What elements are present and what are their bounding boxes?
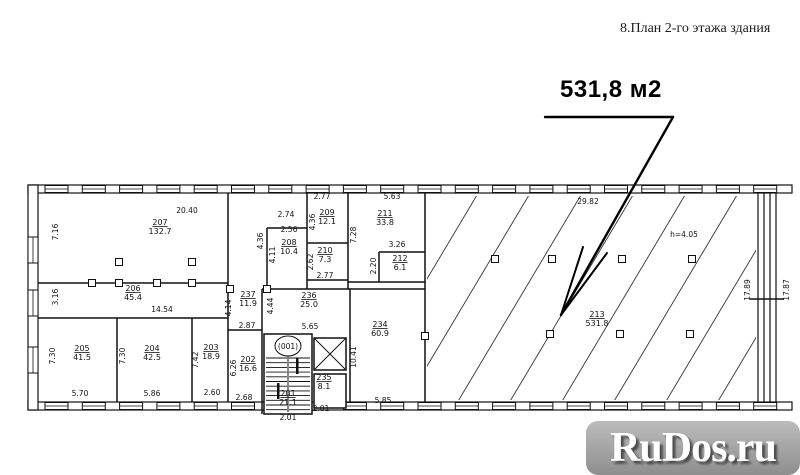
column-marker: [687, 331, 694, 338]
dim-label: 2.20: [369, 257, 378, 274]
window-icon: [567, 403, 590, 410]
dim-label: 7.42: [191, 351, 200, 368]
stair-direction-mark: [277, 383, 280, 399]
column-marker: [689, 256, 696, 263]
dim-label: 7.28: [349, 226, 358, 243]
window-icon: [455, 403, 478, 410]
dim-label: 10.41: [349, 346, 358, 368]
column-marker: [619, 256, 626, 263]
watermark-badge: RuDos.ru: [586, 421, 800, 475]
window-icon: [343, 403, 366, 410]
room-area-205: 41.5: [73, 353, 91, 362]
window-icon: [194, 186, 217, 193]
room-label-213: 213: [589, 310, 604, 319]
window-icon: [82, 186, 105, 193]
window-icon: [343, 186, 366, 193]
window-icon: [679, 403, 702, 410]
window-icon: [605, 403, 628, 410]
window-icon: [120, 186, 143, 193]
window-icon: [28, 237, 38, 263]
dim-label: 17.89: [743, 279, 752, 301]
room-area-211: 33.8: [376, 218, 394, 227]
room-area-208: 10.4: [280, 247, 298, 256]
room-label-237: 237: [240, 290, 255, 299]
dim-label: 2.87: [239, 321, 256, 330]
area-callout-label: 531,8 м2: [560, 76, 662, 104]
column-marker: [116, 259, 123, 266]
column-marker: [617, 331, 624, 338]
window-icon: [567, 186, 590, 193]
window-icon: [269, 186, 292, 193]
dim-label: 4.14: [224, 299, 233, 316]
dim-label: 5.65: [302, 322, 319, 331]
column-marker: [547, 331, 554, 338]
room-area-204: 42.5: [143, 353, 161, 362]
dim-label: 2.62: [306, 253, 315, 270]
room-area-207: 132.7: [149, 227, 172, 236]
room-label-209: 209: [319, 208, 334, 217]
column-marker: [492, 256, 499, 263]
room-label-235: 235: [316, 373, 331, 382]
dim-label: 5.70: [72, 389, 89, 398]
page-title: 8.План 2-го этажа здания: [620, 21, 770, 37]
dim-label: 2.60: [204, 388, 221, 397]
room-area-212: 6.1: [394, 263, 407, 272]
window-icon: [493, 403, 516, 410]
dim-label: 4.36: [308, 213, 317, 230]
window-icon: [82, 403, 105, 410]
dim-label: 29.82: [577, 197, 599, 206]
column-marker: [154, 280, 161, 287]
window-icon: [493, 186, 516, 193]
window-icon: [418, 403, 441, 410]
room-label-205: 205: [74, 344, 89, 353]
dim-label: 2.68: [236, 393, 253, 402]
window-icon: [418, 186, 441, 193]
window-icon: [754, 403, 777, 410]
window-icon: [120, 403, 143, 410]
room-area-237: 11.9: [239, 299, 257, 308]
dim-label: 5.85: [375, 396, 392, 405]
window-icon: [530, 403, 553, 410]
stair-direction-mark: [296, 358, 299, 374]
room-area-206: 45.4: [124, 293, 142, 302]
room-label-236: 236: [301, 291, 316, 300]
room-area-203: 18.9: [202, 352, 220, 361]
room-area-210: 7.3: [319, 255, 332, 264]
window-icon: [754, 186, 777, 193]
room-label-203: 203: [203, 343, 218, 352]
outer-walls: [28, 185, 792, 410]
window-icon: [194, 403, 217, 410]
dim-label: 14.54: [151, 305, 173, 314]
dim-label: 2.56: [281, 225, 298, 234]
room-label-206: 206: [125, 284, 140, 293]
column-marker: [422, 333, 429, 340]
dim-label: 2.74: [278, 210, 295, 219]
window-icon: [28, 347, 38, 373]
dim-label: 3.16: [51, 288, 60, 305]
dim-label: 2.01: [313, 404, 330, 413]
window-icon: [45, 186, 68, 193]
room-label-201: 201: [280, 389, 295, 398]
room-label-208: 208: [281, 238, 296, 247]
window-icon: [232, 403, 255, 410]
floor-plan-svg: (001) 207132.720645.420541.520442.520318…: [0, 0, 800, 475]
window-icon: [530, 186, 553, 193]
dim-label: h=4.05: [670, 230, 698, 239]
room-area-209: 12.1: [318, 217, 336, 226]
room-area-201: 21.1: [279, 398, 297, 407]
room-area-202: 16.6: [239, 364, 257, 373]
dim-label: 2.77: [314, 192, 331, 201]
dim-label: 6.26: [229, 359, 238, 376]
window-icon: [455, 186, 478, 193]
window-icon: [716, 403, 739, 410]
dim-label: 7.30: [48, 347, 57, 364]
dim-label: 4.44: [266, 297, 275, 314]
stair-badge-label: (001): [278, 342, 298, 351]
room-label-211: 211: [377, 209, 392, 218]
dim-label: 7.30: [118, 347, 127, 364]
room-area-213: 531.8: [586, 319, 609, 328]
diagonal-hatching: [350, 190, 800, 408]
dim-label: 2.01: [280, 413, 297, 422]
window-icon: [232, 186, 255, 193]
window-icon: [716, 186, 739, 193]
dim-label: 7.16: [51, 223, 60, 240]
window-icon: [642, 186, 665, 193]
watermark-text: RuDos.ru: [610, 424, 776, 472]
column-marker: [89, 280, 96, 287]
room-label-210: 210: [317, 246, 332, 255]
column-marker: [264, 286, 271, 293]
room-label-207: 207: [152, 218, 167, 227]
room-label-234: 234: [372, 320, 387, 329]
dim-label: 3.26: [389, 240, 406, 249]
dim-label: 20.40: [176, 206, 198, 215]
dim-label: 4.11: [268, 246, 277, 263]
column-marker: [549, 256, 556, 263]
dim-label: 17.87: [782, 279, 791, 301]
column-marker: [227, 286, 234, 293]
column-marker: [116, 280, 123, 287]
column-marker: [189, 280, 196, 287]
dim-label: 5.63: [384, 192, 401, 201]
room-area-234: 60.9: [371, 329, 389, 338]
dim-label: 5.86: [144, 389, 161, 398]
callout-arrow: [545, 117, 673, 315]
room-label-204: 204: [144, 344, 159, 353]
window-icon: [157, 403, 180, 410]
dim-label: 4.36: [256, 232, 265, 249]
window-icon: [45, 403, 68, 410]
room-label-212: 212: [392, 254, 407, 263]
column-marker: [189, 259, 196, 266]
room-area-236: 25.0: [300, 300, 318, 309]
window-icon: [28, 290, 38, 316]
room-area-235: 8.1: [318, 382, 331, 391]
window-icon: [642, 403, 665, 410]
dim-label: 2.77: [317, 271, 334, 280]
room-label-202: 202: [240, 355, 255, 364]
window-icon: [157, 186, 180, 193]
window-icon: [605, 186, 628, 193]
window-icon: [679, 186, 702, 193]
